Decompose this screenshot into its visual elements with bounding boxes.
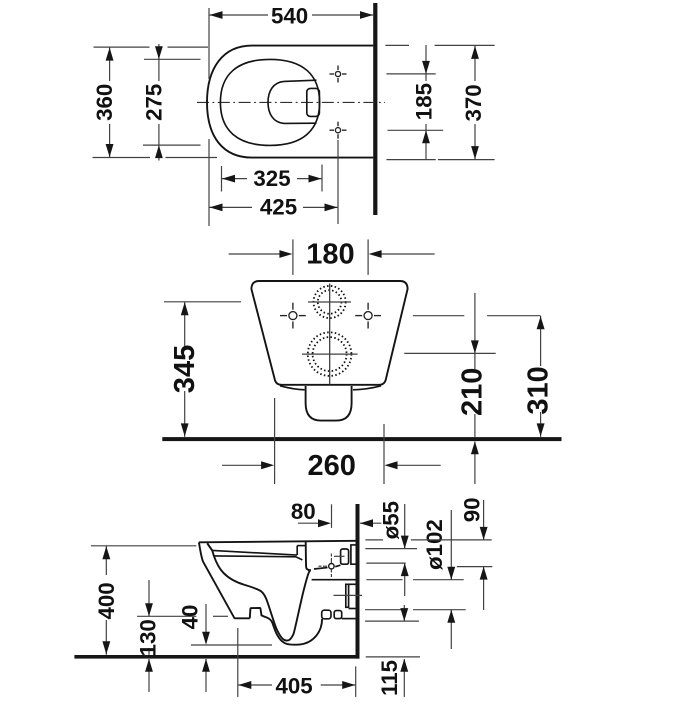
svg-text:325: 325 [253,166,290,191]
svg-text:115: 115 [377,660,402,696]
svg-text:90: 90 [460,497,485,522]
svg-text:185: 185 [412,83,437,120]
svg-text:345: 345 [169,345,201,393]
svg-text:400: 400 [94,582,119,619]
svg-text:40: 40 [178,605,203,630]
svg-text:260: 260 [308,450,356,482]
svg-text:ø55: ø55 [378,501,403,539]
svg-text:360: 360 [92,84,117,121]
svg-text:210: 210 [457,368,489,416]
svg-text:425: 425 [260,194,297,219]
svg-text:80: 80 [291,499,316,524]
svg-text:130: 130 [136,619,161,656]
svg-text:405: 405 [275,673,312,698]
svg-text:275: 275 [142,84,167,121]
svg-text:180: 180 [306,238,354,270]
svg-text:310: 310 [522,366,554,414]
svg-text:370: 370 [461,84,486,121]
svg-text:540: 540 [271,4,308,29]
svg-text:ø102: ø102 [422,519,447,570]
